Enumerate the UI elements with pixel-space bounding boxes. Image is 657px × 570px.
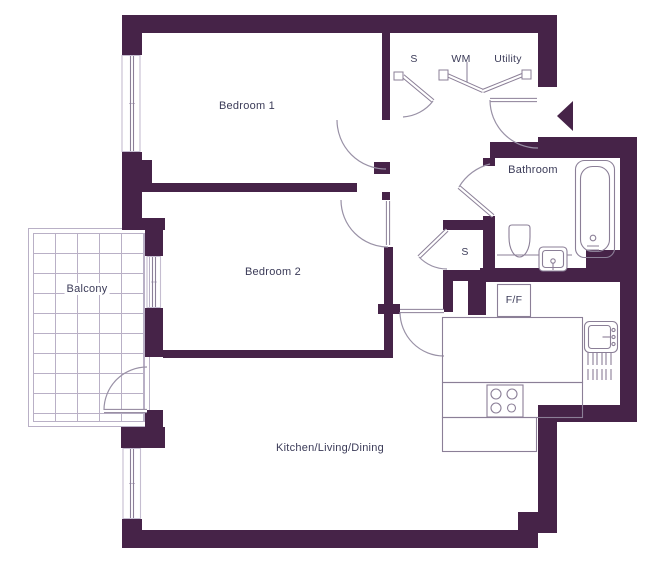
room-label-bathroom: Bathroom	[508, 164, 558, 176]
drainer	[588, 352, 611, 380]
room-label-kitchen-living-dining: Kitchen/Living/Dining	[276, 442, 384, 454]
label-store-hall: S	[461, 246, 468, 258]
hob	[487, 385, 523, 417]
room-label-bedroom1: Bedroom 1	[219, 100, 275, 112]
bathtub	[576, 161, 615, 258]
room-label-balcony: Balcony	[65, 283, 110, 295]
toilet	[509, 225, 530, 257]
window-bedroom2	[147, 256, 161, 308]
label-store-top: S	[410, 53, 417, 65]
doors-wm-utility	[439, 62, 531, 91]
door-bedroom1	[337, 120, 386, 169]
door-store-top	[394, 72, 433, 117]
window-kitchen	[123, 448, 141, 519]
window-bedroom1	[122, 55, 140, 152]
door-entry	[490, 100, 538, 148]
wash-basin	[497, 247, 572, 271]
label-washing-machine: WM	[451, 53, 470, 65]
entry-arrow-icon	[557, 101, 573, 131]
label-fridge-freezer: F/F	[506, 294, 523, 306]
door-bedroom2	[341, 200, 388, 247]
label-utility: Utility	[494, 53, 521, 65]
door-bathroom	[459, 164, 493, 216]
door-balcony	[104, 367, 147, 411]
kitchen-sink	[585, 322, 618, 353]
door-living	[400, 311, 444, 356]
floor-plan: Bedroom 1 Bedroom 2 Balcony Bathroom Kit…	[0, 0, 657, 570]
room-label-bedroom2: Bedroom 2	[245, 266, 301, 278]
door-store-hall	[419, 230, 447, 269]
